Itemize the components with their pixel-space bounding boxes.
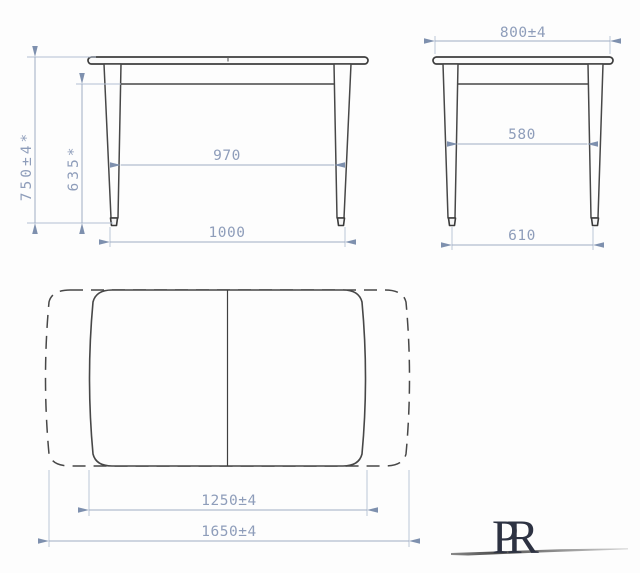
front-right-leg xyxy=(334,64,351,218)
front-left-leg xyxy=(104,64,121,218)
side-view: 800±4 580 610 xyxy=(433,25,613,250)
side-right-leg xyxy=(588,64,603,218)
logo-underline-swoosh xyxy=(451,548,628,555)
dim-label-height: 750±4* xyxy=(19,131,35,201)
dim-label-front-inner-span: 970 xyxy=(213,148,241,164)
front-left-foot xyxy=(111,218,118,226)
side-left-foot xyxy=(449,218,456,226)
dim-label-top-closed-length: 1250±4 xyxy=(201,493,256,509)
dim-label-top-extended-length: 1650±4 xyxy=(201,524,256,540)
brand-logo: PR xyxy=(451,511,628,564)
table-drawing-canvas: 750±4* 635* 970 1000 800±4 580 xyxy=(0,0,640,573)
front-view: 750±4* 635* 970 1000 xyxy=(19,57,368,247)
technical-drawing-page: 750±4* 635* 970 1000 800±4 580 xyxy=(0,0,640,573)
side-tabletop xyxy=(433,57,613,64)
dim-label-apron-clearance: 635* xyxy=(66,145,82,192)
front-right-foot xyxy=(338,218,345,226)
dim-label-side-outer-span: 610 xyxy=(508,228,536,244)
top-view: 1250±4 1650±4 xyxy=(46,290,410,547)
dim-label-front-outer-span: 1000 xyxy=(209,225,246,241)
dim-label-side-inner-span: 580 xyxy=(508,127,536,143)
logo-text: PR xyxy=(492,511,539,564)
dim-label-side-width: 800±4 xyxy=(500,25,546,41)
side-left-leg xyxy=(443,64,458,218)
side-right-foot xyxy=(592,218,599,226)
